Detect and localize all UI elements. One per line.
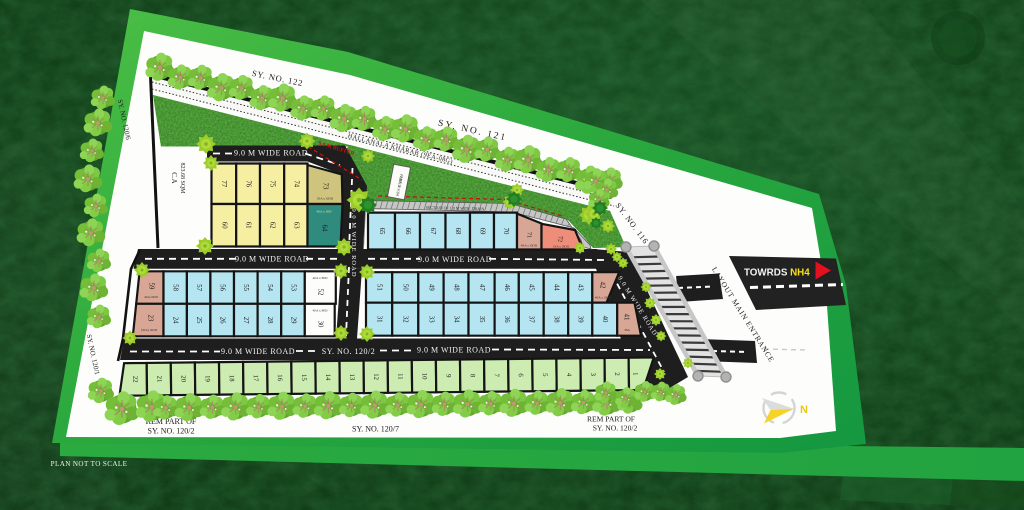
svg-text:40A x ODD: 40A x ODD [521,244,538,248]
svg-text:66: 66 [404,228,411,235]
svg-text:64: 64 [320,225,327,232]
svg-text:19: 19 [204,375,211,382]
svg-text:9.0 M WIDE ROAD: 9.0 M WIDE ROAD [417,346,491,355]
svg-text:67: 67 [429,228,436,235]
svg-text:15: 15 [300,374,307,381]
svg-text:9.0 M WIDE ROAD: 9.0 M WIDE ROAD [350,208,357,277]
svg-text:30: 30 [316,321,323,328]
svg-text:39: 39 [577,316,584,323]
svg-text:71: 71 [526,232,532,238]
svg-text:1: 1 [631,372,638,375]
svg-text:49: 49 [427,284,434,291]
svg-text:52: 52 [316,289,323,296]
svg-text:11: 11 [396,373,403,380]
svg-text:61: 61 [245,222,252,229]
svg-text:70: 70 [502,228,509,235]
svg-text:13: 13 [348,373,355,380]
svg-text:33A x ODD: 33A x ODD [553,245,570,249]
svg-text:37: 37 [528,316,535,323]
svg-text:22: 22 [131,376,138,383]
svg-text:PLAN NOT TO SCALE: PLAN NOT TO SCALE [51,460,128,468]
svg-text:65: 65 [378,228,385,235]
svg-text:75: 75 [269,180,276,187]
svg-text:SY. NO. 120/2: SY. NO. 120/2 [322,347,375,356]
svg-text:40A x 80D: 40A x 80D [313,276,328,280]
svg-text:9.0 M WIDE ROAD: 9.0 M WIDE ROAD [221,347,295,356]
svg-text:20: 20 [179,375,186,382]
svg-text:62: 62 [269,222,276,229]
svg-text:N: N [800,404,808,416]
svg-text:SY. NO. 120/2: SY. NO. 120/2 [148,427,195,436]
svg-text:58: 58 [172,284,179,291]
svg-text:56: 56 [219,284,226,291]
svg-text:33: 33 [427,316,434,323]
svg-text:34: 34 [453,316,460,323]
svg-text:12: 12 [372,373,379,380]
svg-text:36: 36 [503,316,510,323]
svg-text:9.0 M WIDE ROAD: 9.0 M WIDE ROAD [234,149,308,158]
svg-text:51: 51 [376,284,383,291]
svg-text:25: 25 [195,317,202,324]
svg-text:45: 45 [528,284,535,291]
svg-text:60: 60 [220,222,227,229]
svg-text:30A x ODD: 30A x ODD [317,197,334,201]
svg-text:69: 69 [478,228,485,235]
svg-text:823.68 SQM: 823.68 SQM [179,162,185,194]
svg-text:41: 41 [622,314,629,321]
svg-text:29: 29 [289,317,296,324]
svg-text:57: 57 [195,284,202,291]
svg-text:9.0 M WIDE ROAD: 9.0 M WIDE ROAD [418,255,492,264]
svg-text:63: 63 [292,222,299,229]
svg-text:REM PART OF: REM PART OF [587,415,635,424]
svg-text:53: 53 [289,284,296,291]
svg-text:72: 72 [557,236,563,242]
svg-text:59: 59 [147,283,154,290]
svg-text:50: 50 [402,284,409,291]
svg-text:43: 43 [577,284,584,291]
svg-text:76: 76 [245,180,252,187]
svg-text:C.A: C.A [170,172,178,183]
svg-text:47: 47 [478,284,485,291]
svg-text:38: 38 [552,316,559,323]
svg-text:38A: 38A [624,328,630,332]
svg-text:40A x ODD: 40A x ODD [595,296,612,300]
svg-text:68: 68 [454,228,461,235]
svg-text:77: 77 [220,180,227,187]
svg-text:SY. NO. 120/7: SY. NO. 120/7 [352,425,399,434]
svg-text:SY. NO. 120/2: SY. NO. 120/2 [593,424,638,433]
svg-text:35: 35 [478,316,485,323]
svg-text:28: 28 [266,317,273,324]
svg-text:TOWRDS NH4: TOWRDS NH4 [744,268,810,279]
svg-text:9.0 M WIDE ROAD: 9.0 M WIDE ROAD [235,255,309,264]
svg-text:55: 55 [242,284,249,291]
svg-text:14: 14 [324,374,331,381]
svg-text:27: 27 [242,317,249,324]
svg-text:10: 10 [420,373,427,380]
svg-text:40: 40 [601,316,608,323]
svg-text:17: 17 [252,375,259,382]
svg-text:16: 16 [276,374,283,381]
svg-text:44: 44 [552,284,559,291]
svg-text:32: 32 [402,316,409,323]
svg-text:26: 26 [219,317,226,324]
svg-text:(30A) ODD: (30A) ODD [141,328,158,332]
svg-text:73: 73 [321,183,328,190]
svg-text:24: 24 [172,317,179,324]
svg-text:31: 31 [376,316,383,323]
svg-text:21: 21 [155,376,162,383]
svg-text:40A x 80D: 40A x 80D [313,309,328,313]
svg-text:23: 23 [146,315,153,322]
svg-text:42: 42 [598,282,605,289]
svg-text:54: 54 [266,284,273,291]
svg-text:46: 46 [503,284,510,291]
svg-text:48: 48 [453,284,460,291]
svg-text:40A ODD: 40A ODD [144,295,158,299]
svg-text:74: 74 [292,180,299,187]
svg-text:40A x 30D: 40A x 30D [317,210,332,214]
svg-text:18: 18 [228,375,235,382]
